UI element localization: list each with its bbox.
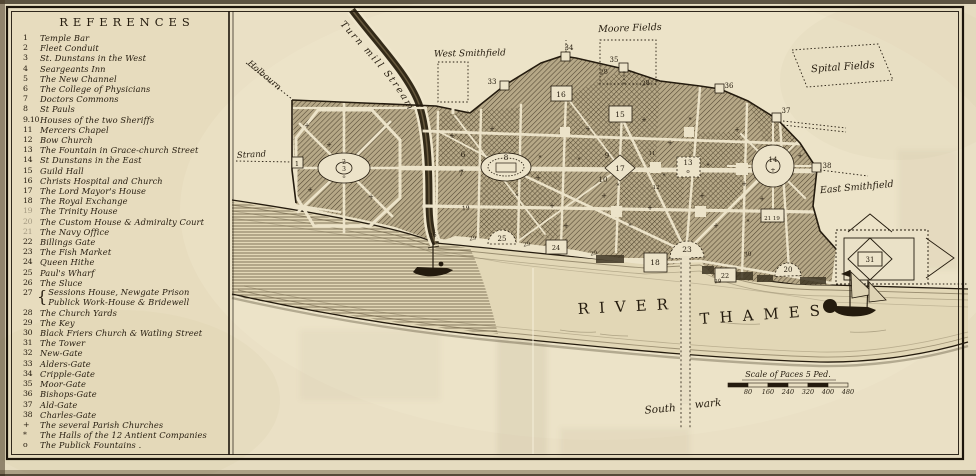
reference-label: Queen Hithe <box>40 257 95 267</box>
reference-item: 13The Fountain in Grace-church Street <box>21 145 227 155</box>
map-marker-37: 37 <box>782 107 791 115</box>
reference-label: Ald-Gate <box>40 400 77 410</box>
reference-item: 35Moor-Gate <box>21 379 227 389</box>
map-marker-*: * <box>689 117 692 124</box>
reference-number: 31 <box>21 338 40 348</box>
reference-number: 35 <box>21 379 40 389</box>
reference-number: 3 <box>21 53 40 63</box>
map-marker-36: 36 <box>725 82 734 90</box>
reference-label: Temple Bar <box>40 33 89 43</box>
map-marker-*: * <box>617 183 620 190</box>
reference-item: 9.10Houses of the two Sheriffs <box>21 115 227 125</box>
reference-number: 13 <box>21 145 40 155</box>
reference-number: 32 <box>21 348 40 358</box>
reference-number: 17 <box>21 186 40 196</box>
reference-label: Sessions House, Newgate Prison Publick W… <box>48 288 189 308</box>
scale-tick: 400 <box>821 388 834 396</box>
map-marker-*: * <box>539 155 542 162</box>
reference-label: The Fountain in Grace-church Street <box>40 145 198 155</box>
reference-number: 22 <box>21 237 40 247</box>
map-marker-3: 3 <box>342 166 346 173</box>
map-marker-+: + <box>585 125 591 133</box>
reference-label: The Tower <box>40 338 85 348</box>
map-marker-+: + <box>549 202 555 210</box>
reference-number: 9.10 <box>21 115 40 125</box>
map-marker-*: * <box>707 163 710 170</box>
references-panel: REFERENCES 1Temple Bar2Fleet Conduit3St.… <box>21 12 227 460</box>
reference-label: Seargeants Inn <box>40 64 106 74</box>
map-marker-+: + <box>449 132 455 140</box>
map-marker-18: 18 <box>650 258 660 267</box>
reference-label: Houses of the two Sheriffs <box>40 115 154 125</box>
reference-item: +The several Parish Churches <box>21 420 227 430</box>
map-marker-11: 11 <box>649 151 656 157</box>
map-marker-*: * <box>516 193 519 200</box>
map-marker-15: 15 <box>615 110 625 119</box>
reference-item: 33Alders-Gate <box>21 359 227 369</box>
reference-number: 8 <box>21 104 40 114</box>
map-label-wark: wark <box>694 397 722 411</box>
reference-item: 27{Sessions House, Newgate Prison Public… <box>21 288 227 308</box>
reference-label: Christs Hospital and Church <box>40 176 163 186</box>
reference-number: 34 <box>21 369 40 379</box>
reference-number: 12 <box>21 135 40 145</box>
reference-number: 29 <box>21 318 40 328</box>
reference-label: Cripple-Gate <box>40 369 95 379</box>
reference-number: 19 <box>21 206 40 216</box>
scale-tick: 80 <box>744 388 752 396</box>
brace-glyph: { <box>37 288 47 305</box>
map-marker-+: + <box>713 222 719 230</box>
reference-number: 30 <box>21 328 40 338</box>
map-marker-13: 13 <box>684 159 693 167</box>
reference-label: Moor-Gate <box>40 379 86 389</box>
map-marker-+: + <box>489 125 495 133</box>
map-marker-1: 1 <box>295 160 299 168</box>
reference-label: The Fish Market <box>40 247 111 257</box>
reference-label: Bow Church <box>40 135 93 145</box>
map-marker-28: 28 <box>599 67 608 76</box>
reference-label: The Church Yards <box>40 308 117 318</box>
map-marker-10: 10 <box>599 176 608 184</box>
reference-number: 16 <box>21 176 40 186</box>
reference-item: 16Christs Hospital and Church <box>21 176 227 186</box>
reference-item: 38Charles-Gate <box>21 410 227 420</box>
scale-tick: 480 <box>841 388 854 396</box>
reference-number: 2 <box>21 43 40 53</box>
reference-item: 8St Pauls <box>21 104 227 114</box>
reference-number: 33 <box>21 359 40 369</box>
reference-item: 18The Royal Exchange <box>21 196 227 206</box>
map-marker-+: + <box>601 192 607 200</box>
reference-number: 36 <box>21 389 40 399</box>
reference-item: 34Cripple-Gate <box>21 369 227 379</box>
reference-number: 25 <box>21 268 40 278</box>
reference-label: The College of Physicians <box>40 84 150 94</box>
map-marker-23: 23 <box>682 245 692 254</box>
reference-number: 6 <box>21 84 40 94</box>
map-marker-2: 2 <box>342 159 346 166</box>
reference-number: 4 <box>21 64 40 74</box>
reference-number: 37 <box>21 400 40 410</box>
map-marker-16: 16 <box>556 90 566 99</box>
map-marker-38: 38 <box>823 162 832 170</box>
references-list: 1Temple Bar2Fleet Conduit3St. Dunstans i… <box>21 33 227 451</box>
map-marker-9: 9 <box>605 152 609 160</box>
map-label-west-smithfield: West Smithfield <box>434 48 506 59</box>
map-marker-6: 6 <box>461 150 466 159</box>
reference-label: The Halls of the 12 Antient Companies <box>40 430 207 440</box>
reference-item: oThe Publick Fountains . <box>21 440 227 450</box>
reference-number: 5 <box>21 74 40 84</box>
reference-item: 4Seargeants Inn <box>21 64 227 74</box>
map-marker-*: * <box>663 173 666 180</box>
reference-label: The Royal Exchange <box>40 196 128 206</box>
map-marker-31: 31 <box>866 256 875 264</box>
map-marker-35: 35 <box>610 56 619 64</box>
reference-number: 7 <box>21 94 40 104</box>
reference-label: Fleet Conduit <box>40 43 99 53</box>
reference-item: 5The New Channel <box>21 74 227 84</box>
reference-number: 24 <box>21 257 40 267</box>
map-marker-+: + <box>667 139 673 147</box>
reference-label: Charles-Gate <box>40 410 96 420</box>
reference-item: 14St Dunstans in the East <box>21 155 227 165</box>
map-marker-14: 14 <box>769 156 778 164</box>
reference-item: 12Bow Church <box>21 135 227 145</box>
map-marker-*: * <box>747 219 750 226</box>
reference-number: 15 <box>21 166 40 176</box>
reference-label: Mercers Chapel <box>40 125 109 135</box>
map-label-strand: Strand <box>237 149 267 161</box>
reference-number: 38 <box>21 410 40 420</box>
map-marker-12: 12 <box>653 185 660 191</box>
reference-item: *The Halls of the 12 Antient Companies <box>21 430 227 440</box>
map-marker-29: 29 <box>714 279 722 286</box>
scale-tick: 240 <box>781 388 794 396</box>
reference-label: New-Gate <box>40 348 83 358</box>
map-marker-*: * <box>461 169 464 176</box>
map-marker-+: + <box>699 192 705 200</box>
reference-item: 22Billings Gate <box>21 237 227 247</box>
map-marker-19: 19 <box>462 205 471 213</box>
map-marker-25: 25 <box>498 235 507 243</box>
reference-number: 11 <box>21 125 40 135</box>
map-marker-29: 29 <box>523 241 531 248</box>
reference-label: The Custom House & Admiralty Court <box>40 217 204 227</box>
map-marker-o: o <box>342 174 345 180</box>
reference-item: 36Bishops-Gate <box>21 389 227 399</box>
scale-tick: 160 <box>762 388 774 396</box>
reference-item: 11Mercers Chapel <box>21 125 227 135</box>
london-bridge <box>680 256 690 428</box>
map-marker-+: + <box>770 166 775 174</box>
reference-label: The New Channel <box>40 74 117 84</box>
map-marker-+: + <box>734 126 740 134</box>
map-marker-+: + <box>326 141 332 149</box>
map-marker-22: 22 <box>721 272 729 280</box>
reference-number: 20 <box>21 217 40 227</box>
reference-number: 21 <box>21 227 40 237</box>
reference-item: 37Ald-Gate <box>21 400 227 410</box>
reference-label: St Pauls <box>40 104 75 114</box>
reference-item: 19The Trinity House <box>21 206 227 216</box>
reference-item: 6The College of Physicians <box>21 84 227 94</box>
map-marker-+: + <box>535 174 541 182</box>
reference-label: The Trinity House <box>40 206 118 216</box>
reference-label: The Key <box>40 318 75 328</box>
map-marker-34: 34 <box>565 44 574 52</box>
reference-number: 14 <box>21 155 40 165</box>
reference-item: 15Guild Hall <box>21 166 227 176</box>
map-marker-+: + <box>563 222 569 230</box>
reference-item: 24Queen Hithe <box>21 257 227 267</box>
reference-item: 25Paul's Wharf <box>21 268 227 278</box>
map-marker-+: + <box>304 122 310 130</box>
reference-item: 17The Lord Mayor's House <box>21 186 227 196</box>
reference-item: 31The Tower <box>21 338 227 348</box>
map-label-moore-fields: Moore Fields <box>597 22 662 35</box>
map-marker-+: + <box>647 204 653 212</box>
reference-item: 1Temple Bar <box>21 33 227 43</box>
reference-item: 21The Navy Office <box>21 227 227 237</box>
reference-label: The Navy Office <box>40 227 109 237</box>
reference-label: The Lord Mayor's House <box>40 186 146 196</box>
reference-number: o <box>21 440 40 450</box>
reference-label: Bishops-Gate <box>40 389 97 399</box>
map-marker-30: 30 <box>744 250 753 258</box>
map-marker-+: + <box>641 116 647 124</box>
reference-label: Doctors Commons <box>40 94 119 104</box>
reference-number: 28 <box>21 308 40 318</box>
map-marker-+: + <box>759 195 765 203</box>
reference-label: Paul's Wharf <box>40 268 94 278</box>
map-marker-20: 20 <box>784 266 793 274</box>
references-title: REFERENCES <box>27 15 227 29</box>
map-marker-+: + <box>307 186 313 194</box>
map-marker-+: + <box>741 180 747 188</box>
scale-title: Scale of Paces 5 Ped. <box>745 370 831 379</box>
reference-label: St. Dunstans in the West <box>40 53 146 63</box>
reference-item: 28The Church Yards <box>21 308 227 318</box>
map-marker-29: 29 <box>469 235 477 242</box>
reference-number: 1 <box>21 33 40 43</box>
map-marker-*: * <box>578 157 581 164</box>
map-marker-26: 26 <box>429 231 438 239</box>
map-marker-21-19: 21 19 <box>764 216 780 222</box>
reference-label: Black Friers Church & Watling Street <box>40 328 202 338</box>
reference-label: St Dunstans in the East <box>40 155 142 165</box>
map-marker-17: 17 <box>615 164 625 173</box>
reference-item: 23The Fish Market <box>21 247 227 257</box>
reference-number: * <box>21 430 40 440</box>
map-marker-24: 24 <box>552 244 560 252</box>
reference-label: Billings Gate <box>40 237 95 247</box>
reference-number: 23 <box>21 247 40 257</box>
map-plate: 123o678910111213o14+15161718192021 19222… <box>0 0 976 476</box>
reference-label: Guild Hall <box>40 166 84 176</box>
reference-label: The several Parish Churches <box>40 420 163 430</box>
reference-item: 30Black Friers Church & Watling Street <box>21 328 227 338</box>
reference-label: Alders-Gate <box>40 359 91 369</box>
map-marker-8: 8 <box>504 153 509 162</box>
map-marker-+: + <box>368 193 374 201</box>
map-marker-*: * <box>629 223 632 230</box>
reference-label: The Publick Fountains . <box>40 440 141 450</box>
reference-item: 2Fleet Conduit <box>21 43 227 53</box>
map-marker-33: 33 <box>488 78 497 86</box>
reference-item: 3St. Dunstans in the West <box>21 53 227 63</box>
reference-item: 20The Custom House & Admiralty Court <box>21 217 227 227</box>
map-marker-28: 28 <box>641 78 650 87</box>
map-marker-+: + <box>797 152 803 160</box>
reference-item: 7Doctors Commons <box>21 94 227 104</box>
reference-number: 18 <box>21 196 40 206</box>
reference-number: + <box>21 420 40 430</box>
scale-tick: 320 <box>802 388 814 396</box>
reference-item: 32New-Gate <box>21 348 227 358</box>
reference-item: 29The Key <box>21 318 227 328</box>
